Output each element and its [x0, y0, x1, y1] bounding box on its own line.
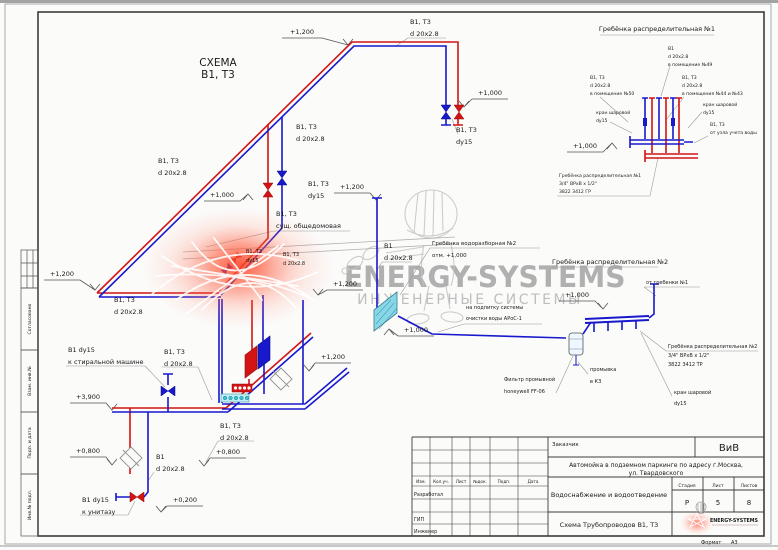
callout-label: В1, Т3d 20x2.8в помещение №50 [590, 75, 634, 97]
callout-label: кран шаровойdy15 [674, 389, 711, 407]
tb-format-value: А3 [731, 540, 738, 546]
callout-label: В1, Т3d 20x2.8в помещения №44 и №43 [682, 75, 743, 97]
tb-sheets-label: Листов [741, 483, 758, 489]
tb-section-title: Водоснабжение и водоотведение [551, 491, 667, 499]
elevation-label: +3,900 [76, 393, 100, 401]
pipe-label: В1, Т3d 20x2.8 [158, 157, 187, 177]
manifold-red-box [232, 384, 252, 392]
tb-col-data: Дата [528, 479, 539, 484]
callout-label: Гребёнка распределительная №13/4" ВРхВ х… [559, 173, 641, 195]
tb-sheets-value: 8 [747, 499, 751, 507]
tb-stage-label: Стадия [678, 483, 696, 489]
schema-title: СХЕМАВ1, Т3 [199, 57, 237, 81]
manifold1-title: Гребёнка распределительная №1 [599, 25, 715, 33]
tb-role-developer: Разработал [414, 492, 443, 498]
callout-label: В1, Т3от узла учета воды [710, 122, 757, 136]
elevation-label: +1,000 [478, 89, 502, 97]
title-block: Изм. Кол.уч. Лист №док. Подп. Дата Разра… [412, 437, 764, 546]
ball-valve-icon [671, 118, 675, 126]
tb-project-line1: Автомойка в подземном паркинге по адресу… [569, 462, 743, 469]
callout-label: кран шаровойdy15 [703, 101, 737, 116]
tb-format-label: Формат [701, 540, 721, 546]
elevation-label: +1,200 [340, 183, 364, 191]
tb-col-podp: Подп. [498, 479, 511, 484]
frame-label-inv-orig: Инв.№ подл. [27, 490, 33, 520]
elevation-label: +1,200 [333, 280, 357, 288]
callout-label: В1 dy15к унитазу [82, 496, 116, 516]
elevation-label: +1,000 [210, 191, 234, 199]
callout-label: промывкав КЗ [590, 367, 616, 385]
cold-riser-symbol [258, 336, 270, 369]
manifold2-title: Гребёнка распределительная №2 [552, 258, 668, 266]
valve-icon [161, 386, 175, 396]
valve-icon [263, 183, 273, 197]
callout-label: В1d 20x2.8в помещение №49 [668, 46, 712, 68]
callout-label: на подпитку системыочистки воды АРоС-1 [466, 305, 523, 322]
pipe-label: В1d 20x2.8 [156, 453, 185, 473]
manifold-intake-title: Гребёнка водоразборная №2отм. +1,000 [432, 241, 516, 259]
tb-customer-label: Заказчик [552, 442, 579, 448]
callout-label: кран шаровойdy15 [596, 109, 630, 124]
elevation-label: +1,200 [50, 270, 74, 278]
elevation-label: +1,000 [404, 326, 428, 334]
tb-col-koluch: Кол.уч. [433, 479, 449, 484]
tb-drawing-title: Схема Трубопроводов В1, Т3 [560, 521, 659, 529]
tb-col-izm: Изм. [416, 479, 426, 484]
pipe-label: В1, Т3d 20x2.8 [296, 123, 325, 143]
tb-sheet-value: 5 [716, 499, 720, 507]
tb-col-ndok: №док. [473, 479, 487, 484]
elevation-label: +1,000 [573, 142, 597, 150]
elevation-label: +1,000 [565, 291, 589, 299]
hot-riser-symbol [245, 346, 257, 378]
tb-col-list: Лист [456, 479, 467, 484]
pipe-label: В1, Т3d 20x2.8 [220, 422, 249, 442]
valve-icon [441, 105, 451, 119]
pipe-label: В1, Т3d 20x2.8 [164, 348, 193, 368]
piping-diagram-svg: Согласовано Взам. инв.№ Подп. и дата Инв… [0, 0, 778, 550]
tb-role-engineer: Инженер [414, 529, 437, 535]
ball-valve-icon [643, 118, 647, 126]
pipe-label: В1d 20x2.8 [384, 242, 413, 262]
elevation-label: +1,200 [321, 353, 345, 361]
elevation-label: +1,200 [290, 28, 314, 36]
frame-label-replace-inv: Взам. инв.№ [27, 366, 33, 396]
pipe-label: В1, Т3d 20x2.8 [114, 296, 143, 316]
tb-role-gip: ГИП [414, 517, 425, 523]
callout-label: Фильтр промывнойhoneywell FF-06 [504, 376, 555, 395]
valve-icon [277, 171, 287, 185]
drawing-sheet: ENERGY-SYSTEMS ИНЖЕНЕРНЫЕ СИСТЕМЫ [0, 0, 778, 550]
tb-sheet-label: Лист [712, 483, 724, 489]
elevation-label: +0,200 [173, 496, 197, 504]
pipe-label: В1, Т3dy15 [308, 180, 329, 200]
logo-text: ENERGY-SYSTEMS [710, 518, 759, 524]
elevation-label: +0,800 [216, 448, 240, 456]
valve-icon [130, 492, 144, 502]
elevation-label: +0,800 [76, 447, 100, 455]
tb-stage-value: Р [685, 499, 689, 507]
pipe-label: В1, Т3d 20x2.8 [410, 18, 439, 38]
frame-label-agreed: Согласовано [27, 303, 33, 334]
tb-customer-value: ВиВ [719, 443, 739, 454]
manifold-cyan-box [221, 394, 249, 402]
callout-label: от гребенки №1 [646, 280, 688, 286]
callout-label: Гребёнка распределительная №23/4" ВРхВ х… [668, 344, 757, 368]
frame-label-sign-date: Подп. и дата [27, 427, 33, 458]
callout-label: В1 dy15к стиральной машине [68, 346, 144, 366]
valve-icon [454, 105, 464, 119]
tb-project-line2: ул. Твардовского [629, 470, 684, 477]
flush-filter [569, 333, 583, 355]
pipe-label: В1, Т3dy15 [456, 126, 477, 146]
diamond-fitting [120, 368, 292, 469]
